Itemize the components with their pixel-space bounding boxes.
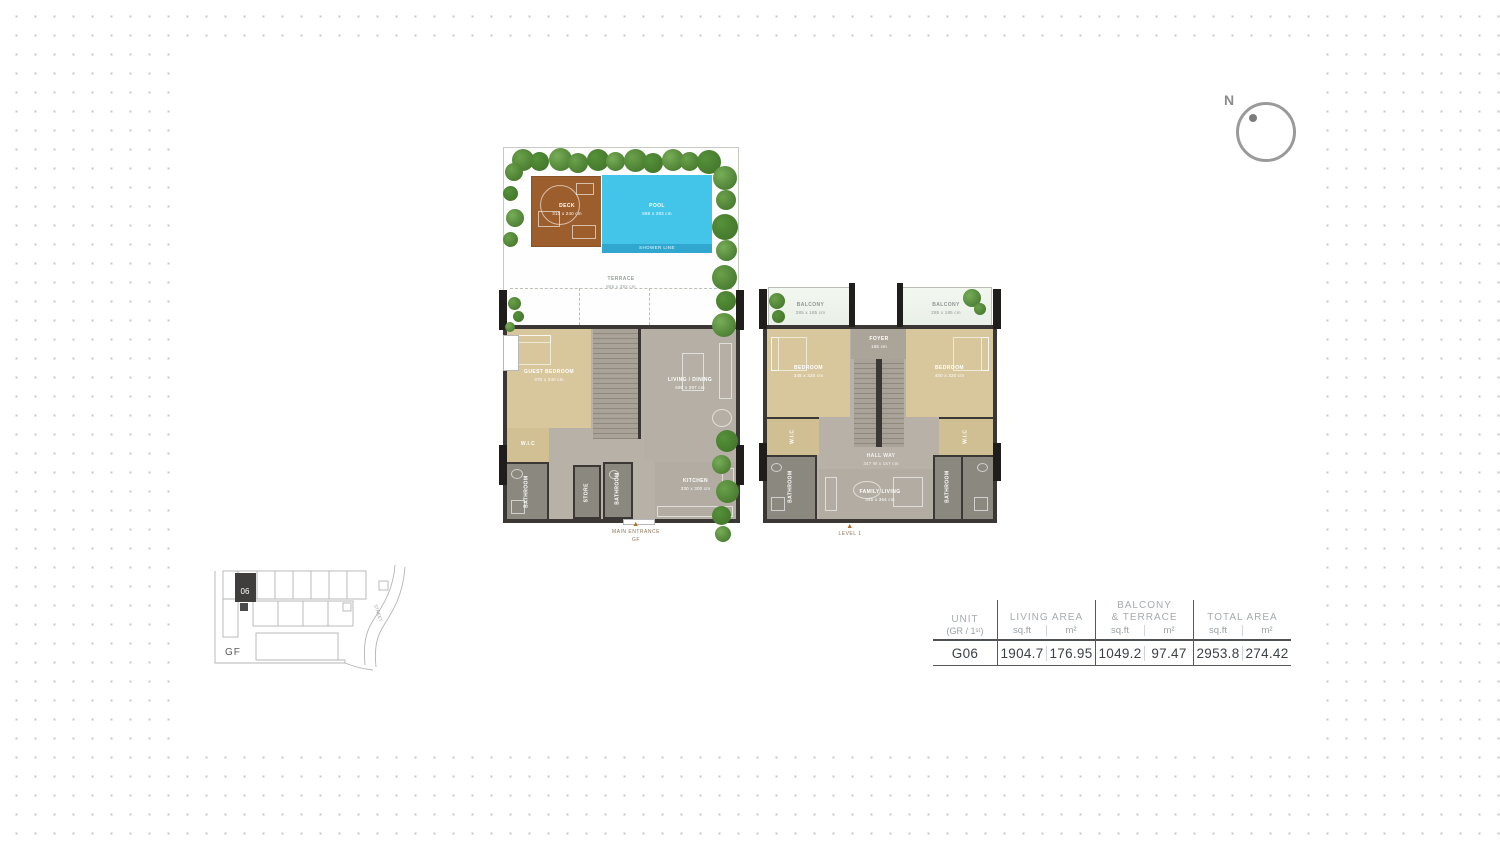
compass: N: [1222, 92, 1302, 164]
tree-icon: [606, 152, 625, 171]
deck-label: DECK 310 x 240 cm: [532, 203, 602, 217]
tree-icon: [712, 214, 738, 240]
tree-icon: [712, 313, 736, 337]
room-wic: W.I.C: [507, 428, 549, 462]
area-table-unit-column: UNIT (GR / 1ˢᵗ) G06: [933, 600, 997, 666]
living-sqm-value: 176.95: [1046, 646, 1095, 661]
wic-label: W.I.C: [507, 441, 549, 449]
tree-icon: [712, 455, 731, 474]
total-sqft-header: sq.ft: [1194, 625, 1242, 636]
tree-icon: [506, 209, 524, 227]
living-dining-label: LIVING / DINING 590 x 397 cm: [644, 377, 736, 391]
unit-subheader: (GR / 1ˢᵗ): [946, 626, 983, 636]
room-guest-bathroom: BATHROOM: [507, 462, 549, 519]
tree-icon: [716, 190, 736, 210]
l1-entrance-marker: ▲ LEVEL 1: [815, 523, 885, 538]
ground-floor-plan: DECK 310 x 240 cm POOL 888 x 393 cm SHOW…: [503, 145, 740, 545]
tree-icon: [716, 430, 738, 452]
room-bathroom-right: BATHROOM: [933, 455, 993, 519]
tree-icon: [974, 303, 986, 315]
tree-icon: [643, 153, 663, 173]
pool-area: POOL 888 x 393 cm SHOWER LINE: [601, 174, 713, 254]
tree-icon: [503, 186, 518, 201]
room-wic-right: W.I.C: [939, 417, 993, 455]
bedroom-left-label: BEDROOM 345 x 320 cm: [767, 365, 850, 379]
compass-circle-icon: [1236, 102, 1296, 162]
living-area-header: LIVING AREA: [998, 612, 1095, 624]
bathroom-left-label: BATHROOM: [787, 463, 795, 511]
tree-icon: [505, 163, 523, 181]
room-bedroom-left: BEDROOM 345 x 320 cm: [767, 329, 850, 417]
gf-staircase: [593, 329, 641, 439]
bedroom-right-label: BEDROOM 400 x 320 cm: [906, 365, 993, 379]
room-store: STORE: [573, 465, 601, 519]
family-living-label: FAMILY LIVING 345 x 364 cm: [819, 489, 941, 503]
terrace-label: TERRACE 865 x 393 cm: [504, 276, 738, 290]
l1-building: BEDROOM 345 x 320 cm FOYER 165 cm BEDROO…: [763, 325, 997, 523]
balcony-sqm-header: m²: [1144, 625, 1193, 636]
tree-icon: [712, 265, 737, 290]
total-sqm-header: m²: [1242, 625, 1291, 636]
level-label: LEVEL 1: [838, 531, 861, 537]
hallway-label: HALL WAY 347 W x 157 cm: [821, 453, 941, 467]
living-sqft-header: sq.ft: [998, 625, 1046, 636]
tree-icon: [568, 153, 588, 173]
balcony-header-line1: BALCONY: [1096, 600, 1193, 612]
area-table-living-column: LIVING AREA sq.ft m² 1904.7 176.95: [997, 600, 1095, 666]
total-area-header: TOTAL AREA: [1194, 612, 1291, 624]
deck-area: DECK 310 x 240 cm: [531, 176, 603, 247]
tree-icon: [716, 480, 739, 503]
compass-dot-icon: [1249, 114, 1257, 122]
room-bathroom: BATHROOM: [603, 462, 633, 519]
room-family-living: FAMILY LIVING 345 x 364 cm: [819, 469, 941, 519]
area-table-total-column: TOTAL AREA sq.ft m² 2953.8 274.42: [1193, 600, 1291, 666]
store-label: STORE: [583, 481, 591, 505]
pool-label: POOL 888 x 393 cm: [602, 203, 712, 217]
tree-icon: [715, 526, 731, 542]
garden-area: DECK 310 x 240 cm POOL 888 x 393 cm SHOW…: [503, 147, 739, 332]
total-sqm-value: 274.42: [1242, 646, 1291, 661]
tree-icon: [716, 240, 737, 261]
tree-icon: [508, 297, 521, 310]
entrance-label: MAIN ENTRANCE: [612, 529, 660, 535]
tree-icon: [530, 152, 549, 171]
tree-icon: [772, 310, 785, 323]
room-foyer: FOYER 165 cm: [851, 329, 907, 359]
tree-icon: [713, 166, 737, 190]
page: N DECK 310 x 240 cm POOL 888 x 393 cm: [0, 0, 1500, 842]
tree-icon: [712, 506, 731, 525]
pool-edge: SHOWER LINE: [602, 244, 712, 253]
entrance-floor-label: GF: [632, 537, 640, 543]
unit-value: G06: [933, 646, 997, 661]
guest-bedroom-label: GUEST BEDROOM 370 x 340 cm: [507, 369, 591, 383]
key-plan: 06 GF STREET: [211, 563, 411, 673]
unit-header: UNIT: [951, 614, 978, 626]
balcony-sqm-value: 97.47: [1144, 646, 1193, 661]
bathroom-right-label: BATHROOM: [944, 458, 952, 516]
tree-icon: [513, 311, 524, 322]
guest-bathroom-label: BATHROOM: [523, 472, 531, 512]
bathroom-label: BATHROOM: [614, 479, 622, 505]
tree-icon: [716, 291, 736, 311]
area-table: UNIT (GR / 1ˢᵗ) G06 LIVING AREA sq.ft m²…: [933, 600, 1291, 666]
tree-icon: [769, 293, 785, 309]
room-guest-bedroom: GUEST BEDROOM 370 x 340 cm: [507, 329, 591, 428]
room-bedroom-right: BEDROOM 400 x 320 cm: [906, 329, 993, 417]
room-bathroom-left: BATHROOM: [767, 455, 817, 519]
living-sqft-value: 1904.7: [998, 646, 1046, 661]
living-sqm-header: m²: [1046, 625, 1095, 636]
key-plan-unit-number: 06: [241, 587, 250, 596]
level1-plan: BALCONY 285 x 185 cm BALCONY 285 x 185 c…: [763, 283, 997, 543]
balcony-header-line2: & TERRACE: [1096, 612, 1193, 624]
l1-staircase: [854, 359, 904, 447]
entrance-arrow-icon: ▲: [600, 521, 672, 528]
tree-icon: [503, 232, 518, 247]
total-sqft-value: 2953.8: [1194, 646, 1242, 661]
foyer-label: FOYER 165 cm: [851, 336, 907, 350]
balcony-sqft-value: 1049.2: [1096, 646, 1144, 661]
gf-entrance-marker: ▲ MAIN ENTRANCE GF: [600, 521, 672, 544]
entrance-arrow-icon: ▲: [815, 523, 885, 530]
compass-north-label: N: [1224, 92, 1234, 108]
room-wic-left: W.I.C: [767, 417, 819, 455]
balcony-sqft-header: sq.ft: [1096, 625, 1144, 636]
tree-icon: [505, 322, 515, 332]
gf-building: GUEST BEDROOM 370 x 340 cm W.I.C LIVING …: [503, 325, 740, 523]
key-plan-floor-label: GF: [225, 647, 241, 658]
area-table-balcony-column: BALCONY & TERRACE sq.ft m² 1049.2 97.47: [1095, 600, 1193, 666]
